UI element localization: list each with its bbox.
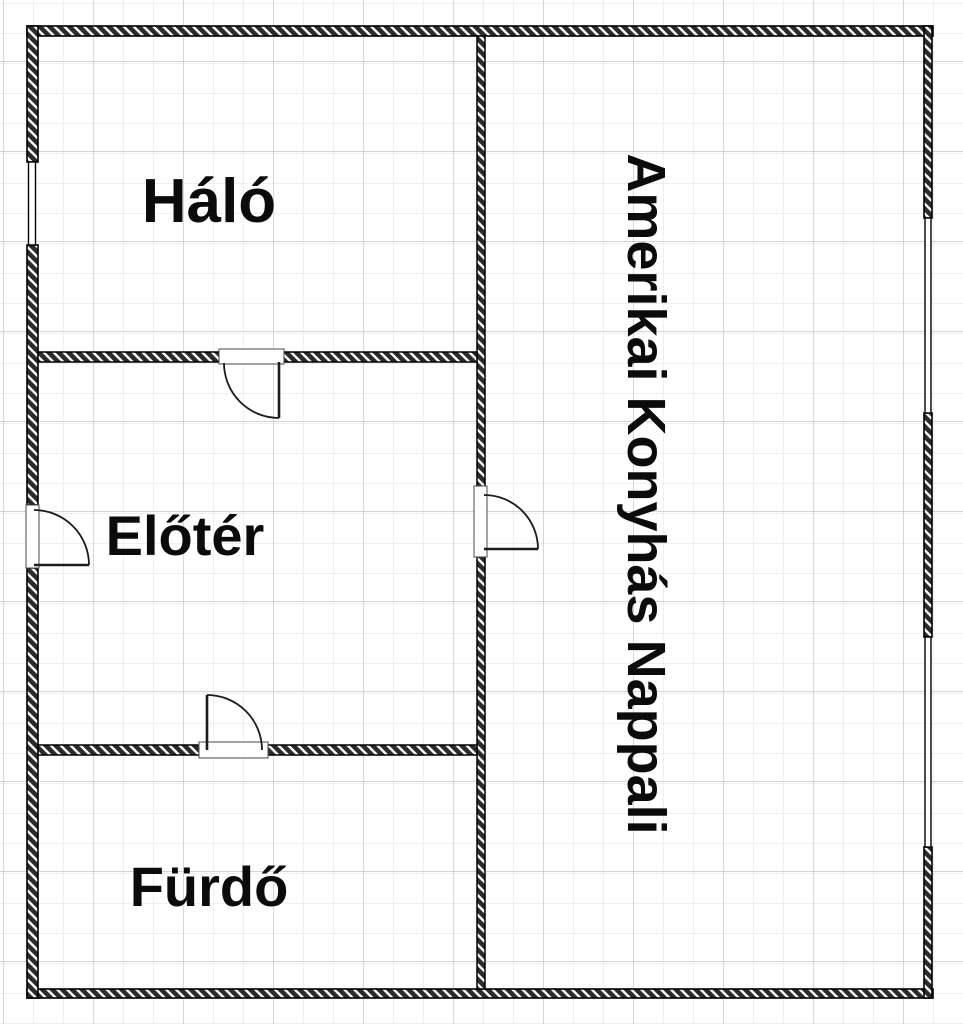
wall-bottom <box>27 989 933 998</box>
room-label-furdo: Fürdő <box>130 859 289 915</box>
wall-right-segment-1 <box>924 26 932 218</box>
wall-eloter-furdo-right <box>267 745 477 755</box>
wall-left-segment-3 <box>27 568 38 998</box>
wall-middle-upper <box>477 36 485 487</box>
wall-left-segment-1 <box>27 26 38 162</box>
wall-halo-eloter-right <box>283 352 477 362</box>
wall-top <box>27 26 933 36</box>
room-label-eloter: Előtér <box>106 508 265 564</box>
room-label-halo: Háló <box>142 171 276 233</box>
wall-left-segment-2 <box>27 245 38 505</box>
window-icon-left-halo <box>29 162 36 245</box>
wall-right-segment-2 <box>924 413 932 637</box>
room-label-nappali: Amerikai Konyhás Nappali <box>619 153 673 834</box>
wall-halo-eloter-left <box>38 352 220 362</box>
window-icon-right-upper <box>925 218 931 413</box>
window-icon-right-lower <box>925 637 931 847</box>
wall-eloter-furdo-left <box>38 745 200 755</box>
wall-middle-lower <box>477 557 485 989</box>
wall-right-segment-3 <box>924 847 932 998</box>
floor-plan: Háló Előtér Fürdő Amerikai Konyhás Nappa… <box>0 0 963 1024</box>
